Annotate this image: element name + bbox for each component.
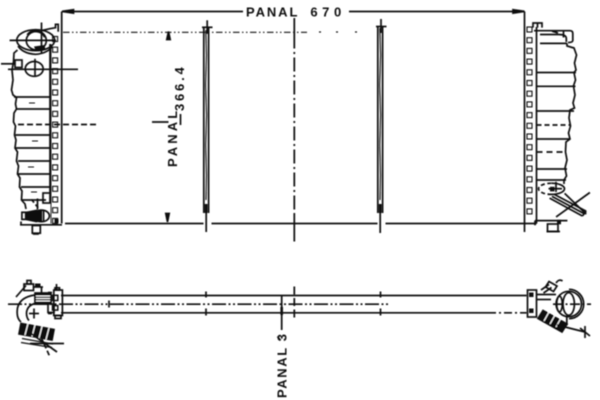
svg-text:366.4: 366.4 xyxy=(172,64,187,111)
svg-text:PANAL 3: PANAL 3 xyxy=(275,332,290,398)
svg-text:PANAL 670: PANAL 670 xyxy=(246,5,346,20)
svg-text:PANAL: PANAL xyxy=(165,108,180,167)
